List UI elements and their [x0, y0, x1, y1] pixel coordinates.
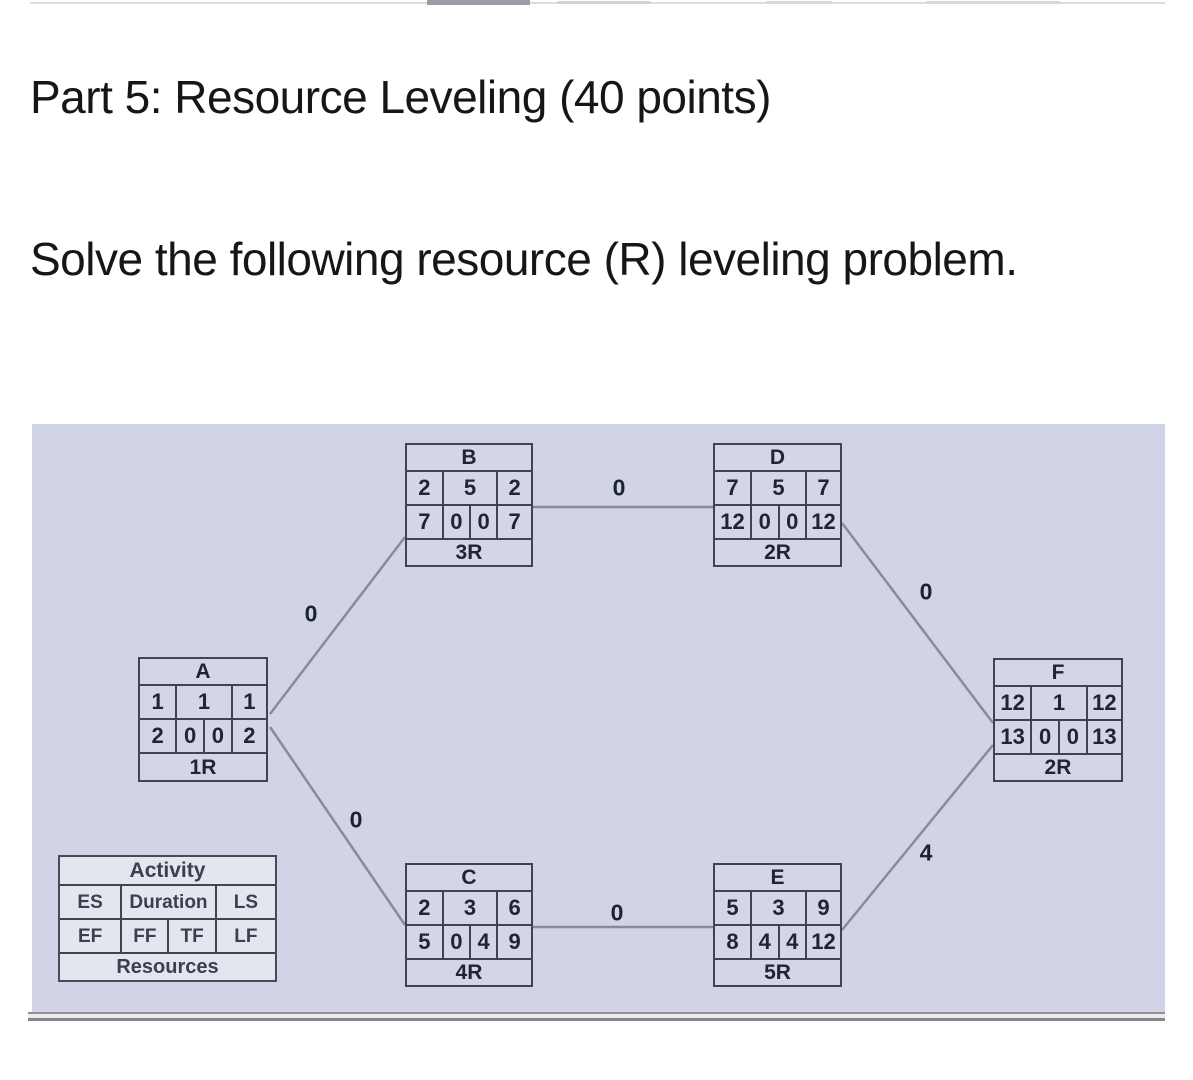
ls-value: 7 [805, 470, 840, 504]
activity-name: C [407, 865, 531, 890]
ef-value: 5 [407, 924, 442, 958]
ls-value: 2 [496, 470, 531, 504]
legend-resources-label: Resources [60, 952, 275, 980]
ls-value: 1 [231, 684, 266, 718]
es-value: 12 [995, 685, 1030, 719]
activity-name: D [715, 445, 840, 470]
ff-value: 4 [750, 924, 778, 958]
problem-statement: Solve the following resource (R) levelin… [30, 232, 1017, 286]
legend-ff-label: FF [120, 918, 167, 952]
page-top-artifact [427, 0, 530, 5]
legend-ls-label: LS [215, 884, 275, 918]
edge-line-d-f [842, 523, 993, 723]
legend-ef-label: EF [60, 918, 120, 952]
edge-line-group [270, 507, 993, 930]
duration-value: 5 [442, 470, 497, 504]
edge-label-a-c: 0 [350, 807, 363, 834]
ef-value: 7 [407, 504, 442, 538]
resources-value: 3R [407, 538, 531, 565]
activity-name: E [715, 865, 840, 890]
network-diagram: A 1 1 1 2 0 0 2 1R B 2 5 2 7 0 0 7 3R C … [32, 424, 1165, 1012]
activity-node-c: C 2 3 6 5 0 4 9 4R [405, 863, 533, 987]
ls-value: 12 [1086, 685, 1121, 719]
es-value: 2 [407, 470, 442, 504]
duration-value: 5 [750, 470, 805, 504]
es-value: 5 [715, 890, 750, 924]
lf-value: 7 [496, 504, 531, 538]
duration-value: 1 [175, 684, 230, 718]
edge-label-b-d: 0 [613, 475, 626, 502]
activity-node-d: D 7 5 7 12 0 0 12 2R [713, 443, 842, 567]
activity-name: B [407, 445, 531, 470]
legend-tf-label: TF [167, 918, 214, 952]
activity-name: F [995, 660, 1121, 685]
legend-duration-label: Duration [120, 884, 215, 918]
lf-value: 13 [1086, 719, 1121, 753]
ff-value: 0 [1030, 719, 1058, 753]
ff-value: 0 [175, 718, 203, 752]
activity-node-f: F 12 1 12 13 0 0 13 2R [993, 658, 1123, 782]
resources-value: 4R [407, 958, 531, 985]
page-top-artifact [766, 1, 832, 4]
edge-label-e-f: 4 [920, 840, 933, 867]
legend-lf-label: LF [215, 918, 275, 952]
edge-label-a-b: 0 [305, 601, 318, 628]
es-value: 2 [407, 890, 442, 924]
activity-node-b: B 2 5 2 7 0 0 7 3R [405, 443, 533, 567]
tf-value: 0 [778, 504, 806, 538]
edge-label-d-f: 0 [920, 579, 933, 606]
ls-value: 9 [805, 890, 840, 924]
ef-value: 2 [140, 718, 175, 752]
ff-value: 0 [750, 504, 778, 538]
es-value: 1 [140, 684, 175, 718]
resources-value: 2R [995, 753, 1121, 780]
activity-node-a: A 1 1 1 2 0 0 2 1R [138, 657, 268, 782]
duration-value: 3 [442, 890, 497, 924]
edge-label-c-e: 0 [611, 900, 624, 927]
edge-line-a-b [270, 537, 405, 714]
ef-value: 8 [715, 924, 750, 958]
lf-value: 12 [805, 504, 840, 538]
tf-value: 0 [203, 718, 231, 752]
legend-activity-label: Activity [60, 857, 275, 884]
duration-value: 3 [750, 890, 805, 924]
edge-line-a-c [270, 727, 405, 925]
tf-value: 4 [778, 924, 806, 958]
activity-node-e: E 5 3 9 8 4 4 12 5R [713, 863, 842, 987]
ff-value: 0 [442, 504, 469, 538]
lf-value: 2 [231, 718, 266, 752]
duration-value: 1 [1030, 685, 1085, 719]
tf-value: 0 [469, 504, 496, 538]
es-value: 7 [715, 470, 750, 504]
lf-value: 12 [805, 924, 840, 958]
ef-value: 13 [995, 719, 1030, 753]
ff-value: 0 [442, 924, 469, 958]
resources-value: 1R [140, 752, 266, 780]
lf-value: 9 [496, 924, 531, 958]
activity-name: A [140, 659, 266, 684]
ls-value: 6 [496, 890, 531, 924]
ef-value: 12 [715, 504, 750, 538]
tf-value: 4 [469, 924, 496, 958]
node-legend: Activity ES Duration LS EF FF TF LF Reso… [58, 855, 277, 982]
bottom-divider [28, 1012, 1165, 1021]
page-top-artifact [926, 1, 1060, 4]
legend-es-label: ES [60, 884, 120, 918]
edge-line-e-f [842, 745, 993, 930]
resources-value: 5R [715, 958, 840, 985]
page-title: Part 5: Resource Leveling (40 points) [30, 70, 771, 124]
resources-value: 2R [715, 538, 840, 565]
tf-value: 0 [1058, 719, 1086, 753]
page-top-artifact [558, 1, 650, 4]
